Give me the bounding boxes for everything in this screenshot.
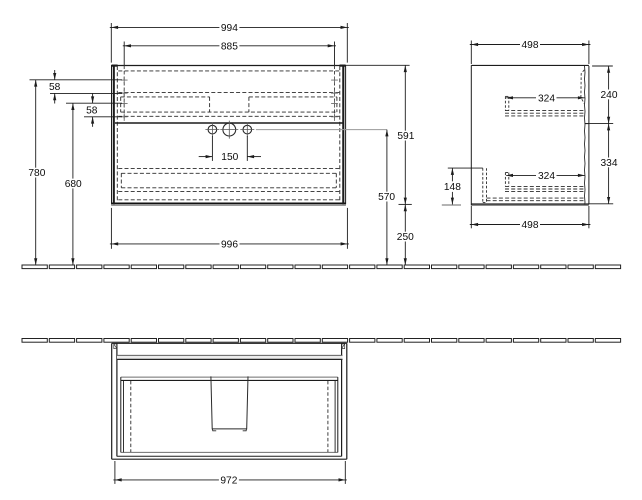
- svg-text:324: 324: [538, 93, 555, 104]
- svg-text:498: 498: [522, 220, 539, 231]
- svg-text:996: 996: [221, 240, 238, 251]
- svg-text:324: 324: [538, 171, 555, 182]
- svg-text:334: 334: [601, 158, 618, 169]
- svg-text:972: 972: [220, 476, 237, 487]
- svg-text:498: 498: [522, 40, 539, 51]
- svg-text:150: 150: [221, 152, 238, 163]
- svg-text:250: 250: [397, 232, 414, 243]
- svg-text:240: 240: [601, 90, 618, 101]
- svg-text:780: 780: [28, 168, 45, 179]
- svg-text:570: 570: [378, 192, 395, 203]
- svg-text:591: 591: [397, 131, 414, 142]
- svg-text:994: 994: [221, 23, 238, 34]
- svg-text:58: 58: [86, 106, 98, 117]
- svg-text:148: 148: [444, 182, 461, 193]
- svg-text:680: 680: [65, 179, 82, 190]
- svg-text:58: 58: [49, 82, 61, 93]
- svg-text:885: 885: [221, 41, 238, 52]
